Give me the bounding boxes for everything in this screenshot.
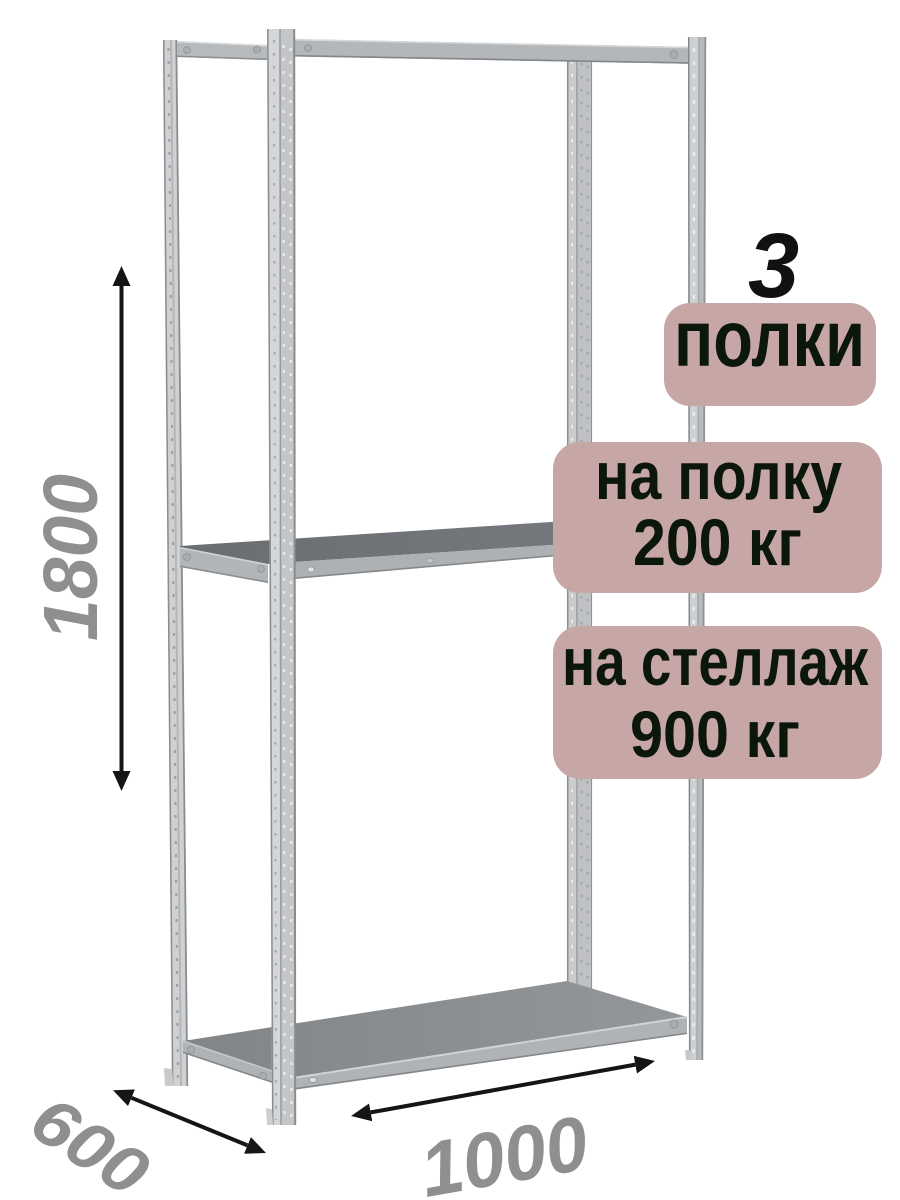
svg-text:200 кг: 200 кг <box>633 505 802 579</box>
svg-text:1800: 1800 <box>28 474 114 641</box>
svg-text:на стеллаж: на стеллаж <box>562 624 869 700</box>
svg-text:900 кг: 900 кг <box>630 697 800 771</box>
svg-text:1000: 1000 <box>414 1100 595 1200</box>
svg-text:на полку: на полку <box>595 438 842 514</box>
svg-text:полки: полки <box>674 294 865 383</box>
